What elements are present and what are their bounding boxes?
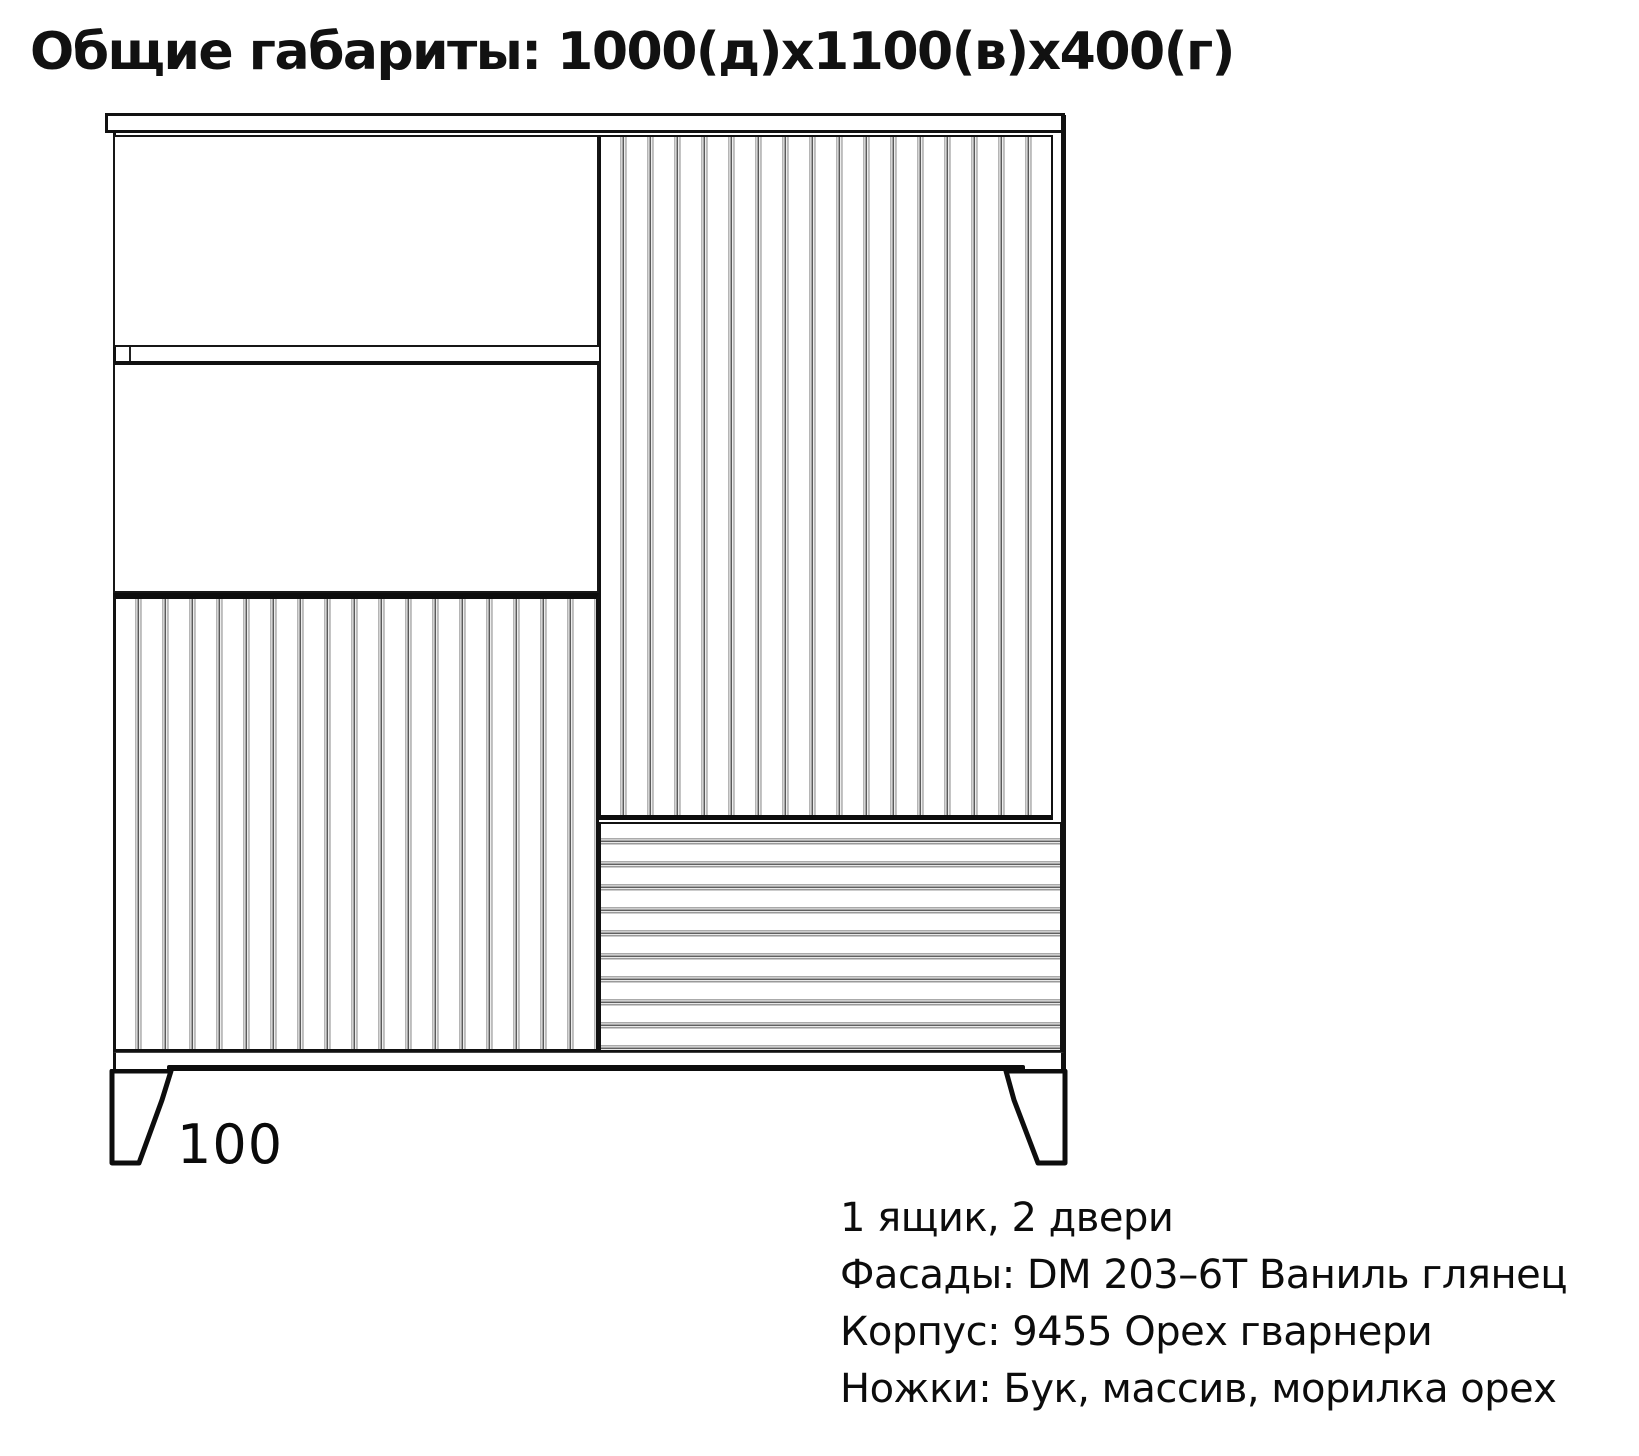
drawer-front — [599, 822, 1062, 1052]
open-shelf-upper — [113, 135, 599, 347]
left-fluted-door — [113, 593, 599, 1052]
base-bottom-line — [167, 1065, 1025, 1071]
specs-block: 1 ящик, 2 двери Фасады: DM 203–6T Ваниль… — [840, 1190, 1600, 1418]
leg-height-label: 100 — [177, 1113, 283, 1176]
spec-line-contents: 1 ящик, 2 двери — [840, 1190, 1600, 1247]
spec-line-legs: Ножки: Бук, массив, морилка орех — [840, 1361, 1600, 1418]
spec-line-body: Корпус: 9455 Орех гварнери — [840, 1304, 1600, 1361]
right-leg — [999, 1069, 1069, 1169]
open-shelf-lower — [113, 361, 599, 593]
spec-line-facades: Фасады: DM 203–6T Ваниль глянец — [840, 1247, 1600, 1304]
left-leg — [109, 1069, 179, 1169]
top-panel — [105, 113, 1065, 133]
right-fluted-door — [599, 135, 1053, 820]
cabinet-drawing: 100 — [105, 113, 1070, 1183]
page-title: Общие габариты: 1000(д)х1100(в)х400(г) — [30, 22, 1190, 82]
